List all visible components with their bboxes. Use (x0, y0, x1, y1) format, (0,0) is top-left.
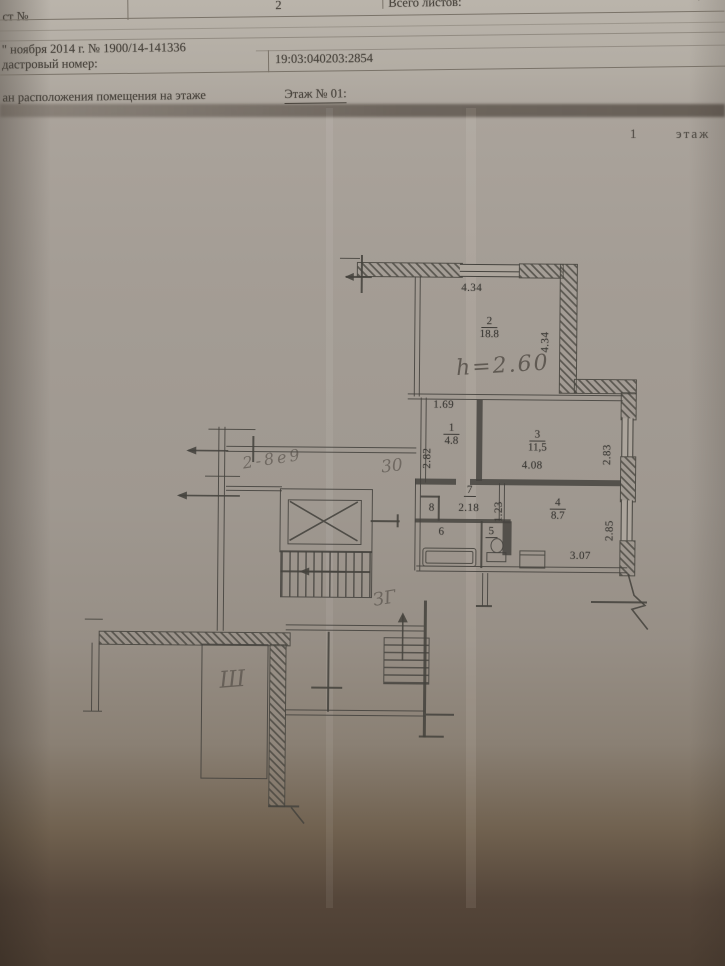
wall-tick (419, 736, 444, 738)
handwritten-note-mid: 30 (380, 455, 404, 477)
toilet (490, 538, 503, 553)
room-4-area: 8.7 (541, 510, 575, 522)
plan-walls (0, 0, 725, 966)
wall-segment (226, 486, 282, 491)
wall-segment (470, 479, 621, 486)
room-7-number: 7 (464, 484, 476, 497)
wall-segment (482, 573, 488, 606)
elevator-shaft-inner (287, 499, 361, 545)
room-6-number: 6 (439, 526, 445, 538)
dim-hall-left: 2.82 (421, 427, 433, 469)
wall-segment (311, 687, 342, 689)
room-label-1: 1 4.8 (436, 422, 466, 447)
room-3-number: 3 (530, 428, 546, 441)
wall-tick (476, 605, 492, 607)
dimension-tick (208, 429, 255, 431)
window (621, 500, 633, 540)
dim-corridor-width: 2.18 (450, 502, 488, 514)
dim-corridor-height: 1.23 (493, 488, 505, 522)
dim-kitchen-window: 2.85 (604, 499, 616, 541)
wall-segment (502, 521, 511, 555)
dimension-tick (205, 476, 240, 478)
dim-hall-top: 1.69 (427, 399, 461, 411)
storage-room (200, 644, 268, 780)
dimension-tick (397, 514, 399, 527)
dim-room3-bottom: 4.08 (512, 459, 552, 471)
wall-segment (357, 262, 463, 278)
bathtub (422, 548, 476, 567)
wall-tick (426, 714, 454, 716)
room-2-number: 2 (482, 315, 498, 328)
window (621, 418, 633, 456)
wall-segment (519, 263, 564, 278)
wall-segment (415, 478, 456, 484)
wall-segment (91, 643, 100, 711)
room-label-3: 3 11,5 (516, 428, 558, 454)
dim-right-height: 4.34 (539, 309, 551, 353)
wall-tick (268, 805, 299, 807)
staircase (280, 550, 372, 598)
kitchen-stove (519, 550, 545, 568)
dimension-tick (371, 520, 400, 522)
dim-kitchen-bottom: 3.07 (557, 550, 603, 562)
room-3-area: 11,5 (516, 441, 558, 453)
wall-segment (480, 521, 482, 568)
room-1-number: 1 (444, 422, 460, 435)
wall-tick (340, 258, 360, 260)
wall-tick (361, 255, 363, 293)
wall-segment (217, 427, 226, 631)
window (460, 264, 520, 278)
wall-segment (559, 264, 578, 394)
room-label-2: 2 18.8 (470, 315, 508, 341)
dim-room3-window: 2.83 (601, 421, 613, 465)
wall-segment (327, 632, 330, 712)
wall-segment (285, 709, 425, 716)
wall-tick (85, 619, 103, 621)
scanned-floor-plan-page: ст № 2 Всего листов: " ноября 2014 г. № … (0, 0, 725, 966)
wall-segment (620, 456, 636, 502)
room-5-number: 5 (486, 525, 498, 538)
entrance-stairs (383, 637, 429, 684)
room-1-area: 4.8 (436, 435, 466, 447)
floor-plan: 4.34 4.34 2 18.8 1.69 2.82 1 4.8 3 11,5 … (0, 0, 725, 966)
handwritten-note-storage: Ш (218, 666, 246, 694)
dimension-line (591, 601, 647, 603)
room-8-number: 8 (429, 502, 435, 514)
dimension-tick (346, 276, 372, 278)
wall-segment (268, 644, 286, 807)
table-line (698, 0, 700, 1)
room-4-number: 4 (550, 497, 566, 510)
wall-segment (438, 496, 440, 521)
wall-segment (414, 276, 421, 396)
handwritten-note-lower: ЗГ (371, 586, 397, 611)
wall-segment (476, 400, 483, 481)
wall-segment (286, 624, 424, 631)
dim-top-width: 4.34 (450, 282, 494, 294)
toilet-base (486, 552, 506, 562)
wall-tick (83, 711, 102, 713)
wall-segment (414, 478, 421, 570)
wall-segment (621, 392, 637, 420)
room-label-4: 4 8.7 (541, 497, 575, 522)
room-2-area: 18.8 (470, 328, 508, 340)
